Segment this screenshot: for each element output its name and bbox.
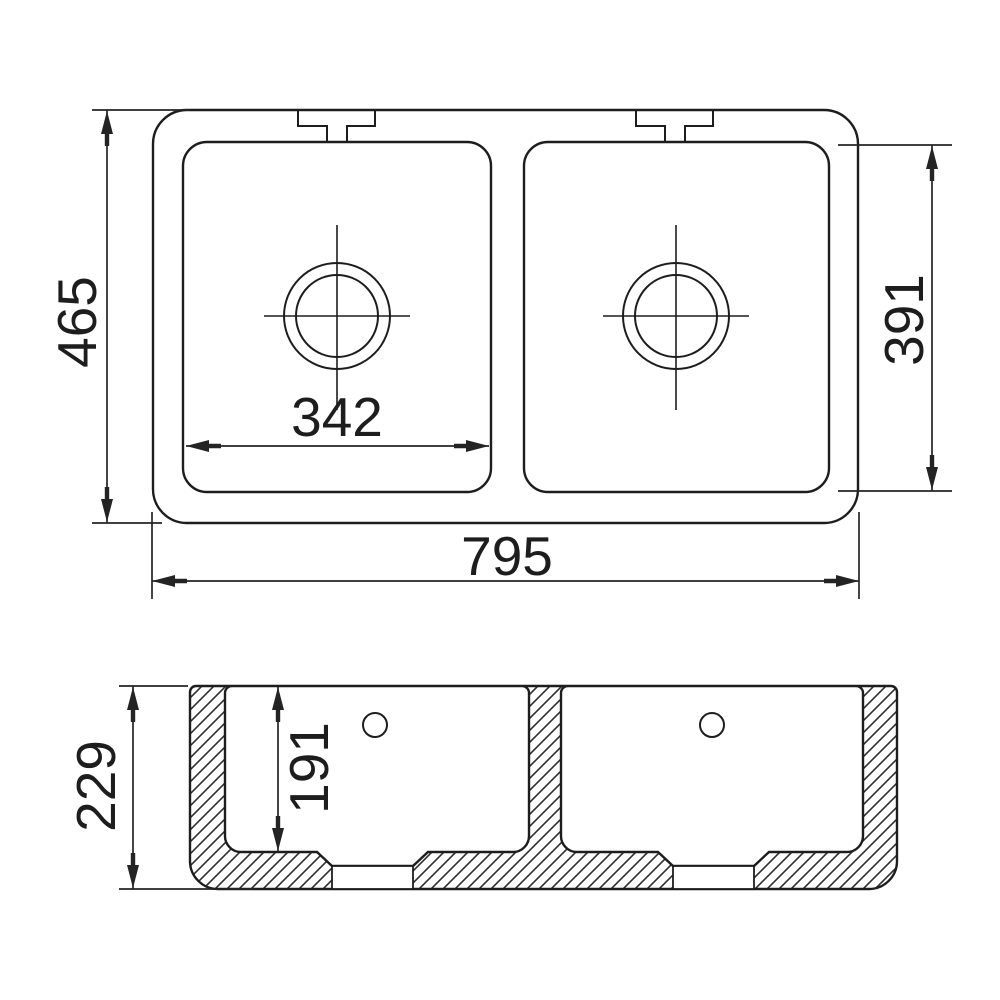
dimension-overall-width: 795 <box>152 512 859 599</box>
left-drain-recess <box>332 866 413 889</box>
sink-technical-drawing: 465 391 342 795 <box>0 0 1000 1000</box>
arrowhead-up-icon <box>101 111 113 146</box>
dim-label-overall-width: 795 <box>461 525 553 587</box>
arrowhead-down-icon <box>926 455 938 490</box>
arrowhead-right-icon <box>824 575 859 587</box>
arrowhead-down-icon <box>272 816 284 851</box>
dimension-bowl-inner-depth: 191 <box>272 686 340 852</box>
plan-outer-rim <box>153 110 858 523</box>
arrowhead-down-icon <box>101 487 113 522</box>
dim-label-overall-height: 229 <box>65 740 127 832</box>
plan-view <box>153 110 858 523</box>
dim-label-overall-depth: 465 <box>46 276 108 368</box>
arrowhead-up-icon <box>127 687 139 722</box>
right-overflow-hole <box>700 713 724 737</box>
arrowhead-up-icon <box>272 687 284 722</box>
dim-label-bowl-width: 342 <box>291 386 383 448</box>
right-drain-recess <box>673 866 754 889</box>
technical-drawing-sheet: 465 391 342 795 <box>0 0 1000 1000</box>
arrowhead-down-icon <box>127 853 139 888</box>
dim-label-bowl-depth: 391 <box>873 274 935 366</box>
left-overflow-hole <box>363 713 387 737</box>
arrowhead-left-icon <box>152 575 187 587</box>
dim-label-bowl-inner-depth: 191 <box>278 722 340 814</box>
arrowhead-up-icon <box>926 146 938 181</box>
